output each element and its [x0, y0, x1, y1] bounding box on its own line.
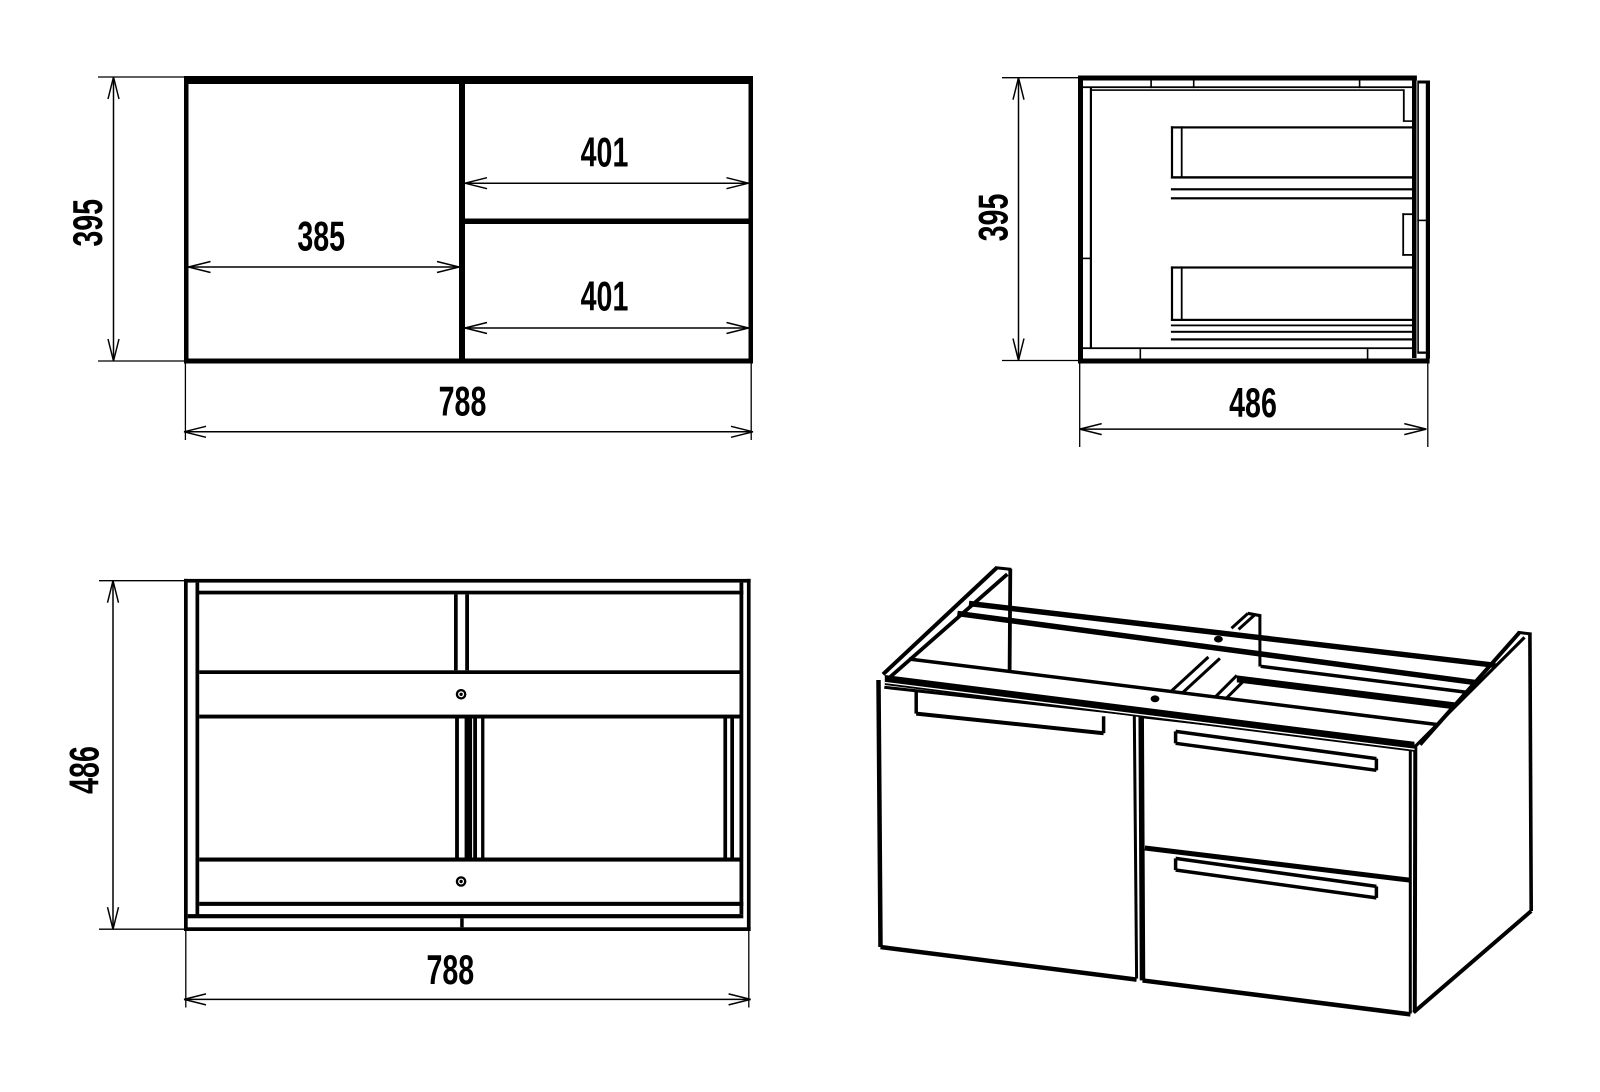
svg-text:395: 395	[969, 194, 1017, 242]
svg-text:486: 486	[1229, 378, 1277, 426]
svg-text:385: 385	[297, 212, 345, 260]
svg-text:401: 401	[581, 128, 629, 176]
svg-text:788: 788	[426, 945, 474, 993]
svg-text:395: 395	[63, 199, 111, 247]
svg-text:401: 401	[581, 272, 629, 320]
svg-text:788: 788	[439, 377, 487, 425]
svg-text:486: 486	[60, 746, 108, 794]
